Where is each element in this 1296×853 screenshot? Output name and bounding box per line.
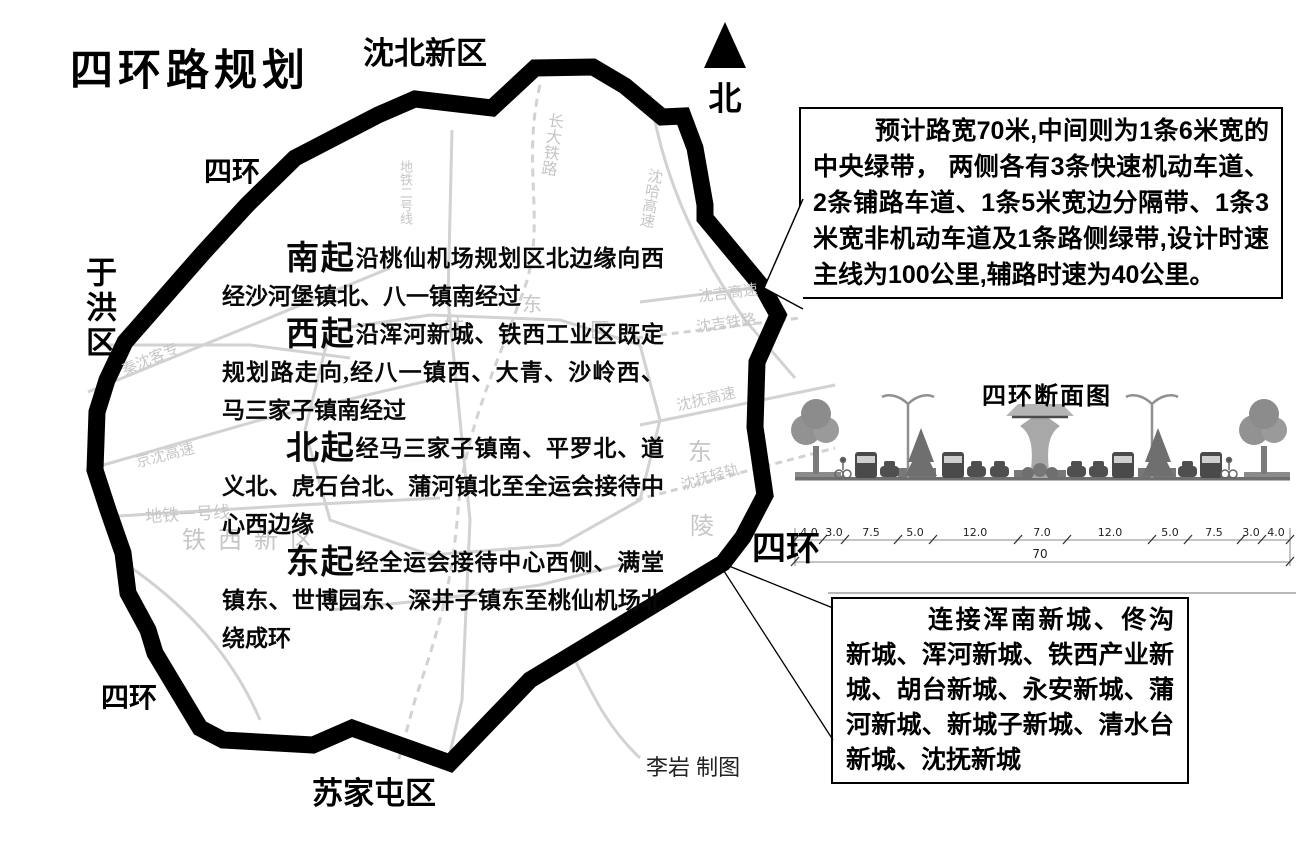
callout-road-spec-text: 预计路宽70米,中间则为1条6米宽的中央绿带， 两侧各有3条快速机动车道、2条铺… xyxy=(813,113,1269,293)
ring-label-top-left: 四环 xyxy=(204,150,260,190)
callout-connections: 连接浑南新城、佟沟新城、浑河新城、铁西产业新城、胡台新城、永安新城、蒲河新城、新… xyxy=(831,597,1189,784)
callout-road-spec: 预计路宽70米,中间则为1条6米宽的中央绿带， 两侧各有3条快速机动车道、2条铺… xyxy=(799,107,1283,299)
dimension-labels: 4.0 3.0 7.5 5.0 12.0 7.0 12.0 5.0 7.5 3.… xyxy=(800,526,1285,561)
route-descriptions: 南起沿桃仙机场规划区北边缘向西经沙河堡镇北、八一镇南经过 西起沿浑河新城、铁西工… xyxy=(222,240,664,658)
route-paragraph-south: 南起沿桃仙机场规划区北边缘向西经沙河堡镇北、八一镇南经过 xyxy=(222,240,664,316)
dim-label: 3.0 xyxy=(825,526,843,539)
north-arrow-icon xyxy=(704,22,746,68)
center-pylon xyxy=(1006,404,1074,479)
dim-label: 7.5 xyxy=(1205,526,1223,539)
conifer-right xyxy=(1142,428,1174,476)
ring-label-right: 四环 xyxy=(752,521,820,570)
page-title: 四环路规划 xyxy=(70,36,310,98)
tree-right xyxy=(1239,399,1287,474)
dim-label: 3.0 xyxy=(1242,526,1260,539)
dim-label: 5.0 xyxy=(906,526,924,539)
small-road xyxy=(575,660,640,758)
cross-section-drawing: 4.0 3.0 7.5 5.0 12.0 7.0 12.0 5.0 7.5 3.… xyxy=(791,395,1294,566)
tree-left xyxy=(791,399,839,474)
dim-total-label: 70 xyxy=(1032,547,1047,561)
credit-line: 李岩 制图 xyxy=(646,750,740,782)
route-paragraph-west: 西起沿浑河新城、铁西工业区既定规划路走向,经八一镇西、大青、沙岭西、马三家子镇南… xyxy=(222,316,664,430)
route-lead-east: 东起 xyxy=(286,543,356,580)
cross-section-title: 四环断面图 xyxy=(982,376,1112,411)
district-label-shenbei: 沈北新区 xyxy=(363,28,487,73)
route-lead-west: 西起 xyxy=(286,315,356,352)
infographic-canvas: 4.0 3.0 7.5 5.0 12.0 7.0 12.0 5.0 7.5 3.… xyxy=(0,0,1296,853)
bg-label-metro-line2: 地铁二号线 xyxy=(396,160,415,225)
district-label-sujiatun: 苏家屯区 xyxy=(312,768,436,813)
dim-label: 5.0 xyxy=(1161,526,1179,539)
route-lead-south: 南起 xyxy=(286,239,356,276)
north-label: 北 xyxy=(704,72,746,120)
route-paragraph-east: 东起经全运会接待中心西侧、满堂镇东、世博园东、深井子镇东至桃仙机场北绕成环 xyxy=(222,544,664,658)
dim-label: 7.5 xyxy=(862,526,880,539)
conifer-left xyxy=(905,428,937,476)
callout-connections-text: 连接浑南新城、佟沟新城、浑河新城、铁西产业新城、胡台新城、永安新城、蒲河新城、新… xyxy=(846,603,1174,778)
dim-label: 12.0 xyxy=(1098,526,1123,539)
route-paragraph-north: 北起经马三家子镇南、平罗北、道义北、虎石台北、蒲河镇北至全运会接待中心西边缘 xyxy=(222,430,664,544)
dim-label: 7.0 xyxy=(1033,526,1051,539)
route-lead-north: 北起 xyxy=(286,429,356,466)
bg-label-ling: 陵 xyxy=(690,506,714,541)
dim-label: 12.0 xyxy=(963,526,988,539)
ring-label-bottom-left: 四环 xyxy=(101,676,157,716)
district-label-yuhong: 于洪区 xyxy=(76,256,121,361)
dim-label: 4.0 xyxy=(1267,526,1285,539)
north-indicator: 北 xyxy=(704,22,746,120)
bg-label-dong: 东 xyxy=(688,432,712,467)
